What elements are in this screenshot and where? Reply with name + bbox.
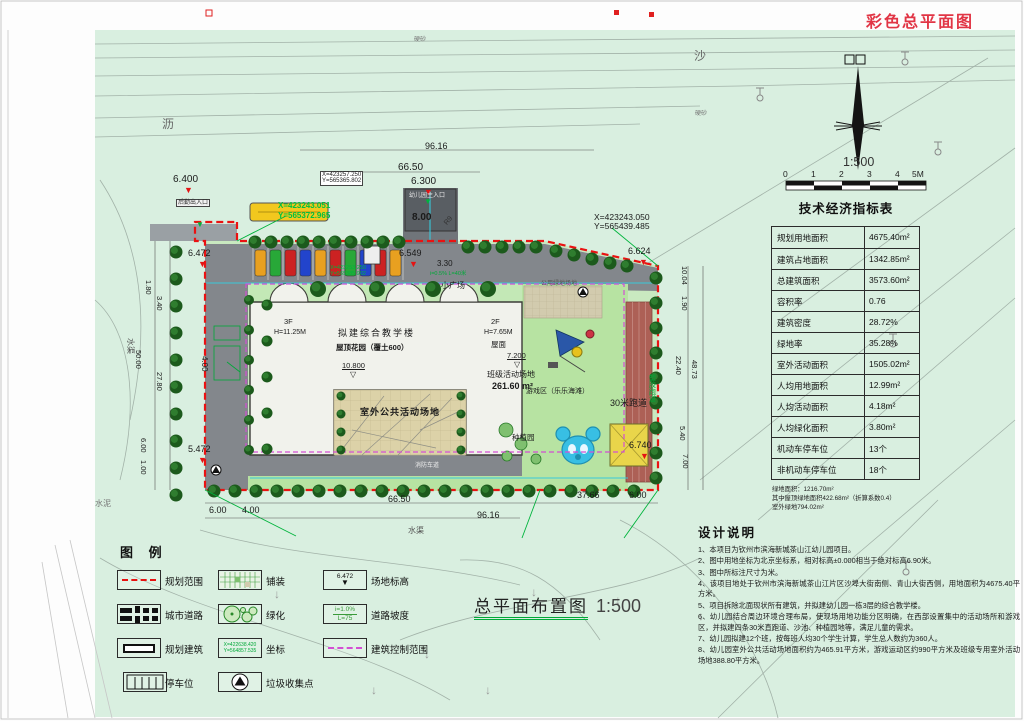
- greenery-icon: [220, 604, 260, 624]
- indicator-row: 容积率0.76: [772, 290, 919, 311]
- building-outline-icon: [123, 644, 155, 653]
- indicator-label: 人均绿化面积: [772, 417, 865, 437]
- legend-label: 铺装: [266, 574, 285, 588]
- legend-symbol-trash-point: [218, 672, 262, 692]
- indicator-row: 人均活动面积4.18m²: [772, 395, 919, 416]
- indicator-table-title: 技术经济指标表: [758, 198, 934, 217]
- legend-label: 绿化: [266, 608, 285, 622]
- design-notes-title: 设计说明: [698, 522, 1020, 541]
- slope-value: i=1.0%: [333, 606, 357, 614]
- legend-symbol-building-control: [323, 638, 367, 658]
- indicator-label: 机动车停车位: [772, 438, 865, 458]
- indicator-label: 人均活动面积: [772, 396, 865, 416]
- indicator-label: 规划用地面积: [772, 227, 865, 248]
- legend-symbol-planned-building: [117, 638, 161, 658]
- indicator-value: 4.18m²: [865, 396, 919, 416]
- indicator-row: 非机动车停车位18个: [772, 458, 919, 479]
- trash-point-legend-icon: [220, 672, 260, 692]
- design-note: 1、本项目为钦州市滨海新城茶山江幼儿园项目。: [698, 545, 1020, 555]
- red-dash-line-icon: [122, 579, 156, 581]
- drawing-title-text: 总平面布置图: [474, 597, 588, 620]
- design-note: 6、幼儿园结合周边环境合理布局，使现场用地功能分区明确，在西部设置集中的活动场所…: [698, 612, 1020, 633]
- indicator-label: 建筑占地面积: [772, 249, 865, 269]
- legend-label: 道路坡度: [371, 608, 409, 622]
- indicator-value: 3573.60m²: [865, 270, 919, 290]
- indicator-row: 建筑密度28.72%: [772, 311, 919, 332]
- indicator-row: 总建筑面积3573.60m²: [772, 269, 919, 290]
- indicator-value: 4675.40m²: [865, 227, 919, 248]
- scale-tick: 5M: [912, 169, 924, 179]
- slope-length: L=75: [338, 615, 353, 622]
- indicator-footnote: 绿地面积：1216.70m²: [772, 486, 896, 495]
- design-notes-panel: 设计说明 1、本项目为钦州市滨海新城茶山江幼儿园项目。2、图中用地坐标为北京坐标…: [698, 522, 1020, 667]
- legend-label: 建筑控制范围: [371, 642, 428, 656]
- elevation-marker-icon: 6.472 ▼: [337, 574, 353, 587]
- survey-marks: [206, 10, 654, 17]
- indicator-value: 12.99m²: [865, 375, 919, 395]
- scale-bar: [786, 181, 926, 190]
- legend-label: 城市道路: [165, 608, 203, 622]
- legend-symbol-paving: [218, 570, 262, 590]
- indicator-value: 0.76: [865, 291, 919, 311]
- indicator-value: 35.28%: [865, 333, 919, 353]
- coordinate-icon: X=422638.420 Y=564857.535: [224, 642, 257, 654]
- design-note: 4、该项目地处于钦州市滨海新城茶山江片区沙埠大街南侧、青山大街西侧，用地面积为4…: [698, 579, 1020, 600]
- indicator-value: 3.80m²: [865, 417, 919, 437]
- legend-symbol-coordinates: X=422638.420 Y=564857.535: [218, 638, 262, 658]
- scale-tick: 0: [783, 169, 788, 179]
- indicator-row: 人均绿化面积3.80m²: [772, 416, 919, 437]
- site-plan-sheet: 96.1666.506.400▼6.300▼▼8.00幼儿园主入口后勤出入口▼R…: [0, 0, 1024, 721]
- design-note: 8、幼儿园室外公共活动场地面积约为465.91平方米，游戏运动区约990平方米及…: [698, 645, 1020, 666]
- indicator-label: 绿地率: [772, 333, 865, 353]
- courtyard-plaza: [334, 390, 466, 455]
- design-note: 2、图中用地坐标为北京坐标系，相对标高±0.000相当于绝对标高6.90米。: [698, 556, 1020, 566]
- indicator-value: 28.72%: [865, 312, 919, 332]
- legend-label: 坐标: [266, 642, 285, 656]
- coord-y: Y=564857.535: [224, 648, 257, 654]
- legend-symbol-road-slope: i=1.0% L=75: [323, 604, 367, 624]
- legend-symbol-site-elevation: 6.472 ▼: [323, 570, 367, 590]
- parking-icon: [125, 673, 165, 691]
- legend-label: 规划范围: [165, 574, 203, 588]
- indicator-row: 人均用地面积12.99m²: [772, 374, 919, 395]
- legend-label: 垃圾收集点: [266, 676, 314, 690]
- page-title: 彩色总平面图: [866, 8, 974, 32]
- legend-symbol-parking: [123, 672, 167, 692]
- drawing-title: 总平面布置图1:500: [474, 592, 641, 617]
- design-note: 7、幼儿园拟建12个班，按每班人均30个学生计算，学生总人数约为360人。: [698, 634, 1020, 644]
- indicator-label: 非机动车停车位: [772, 459, 865, 479]
- indicator-row: 机动车停车位13个: [772, 437, 919, 458]
- scale-tick: 3: [867, 169, 872, 179]
- parking-row: [253, 246, 403, 280]
- indicator-label: 室外活动面积: [772, 354, 865, 374]
- indicator-row: 室外活动面积1505.02m²: [772, 353, 919, 374]
- indicator-row: 绿地率35.28%: [772, 332, 919, 353]
- sand-pit: [610, 424, 648, 466]
- legend-title: 图 例: [120, 542, 168, 561]
- design-note: 3、图中所标注尺寸为米。: [698, 568, 1020, 578]
- indicator-footnote: 其中屋顶绿地面积422.68m²（折算系数0.4）: [772, 495, 896, 504]
- legend-symbol-planning-boundary: [117, 570, 161, 590]
- indicator-label: 容积率: [772, 291, 865, 311]
- magenta-dash-line-icon: [328, 647, 362, 649]
- legend-label: 场地标高: [371, 574, 409, 588]
- indicator-value: 1342.85m²: [865, 249, 919, 269]
- legend-symbol-city-road: [117, 604, 161, 624]
- indicator-table: 规划用地面积4675.40m²建筑占地面积1342.85m²总建筑面积3573.…: [771, 226, 920, 480]
- road-slope-icon: i=1.0% L=75: [333, 606, 357, 622]
- indicator-footnotes: 绿地面积：1216.70m²其中屋顶绿地面积422.68m²（折算系数0.4）室…: [772, 486, 896, 512]
- indicator-footnote: 室外绿地794.02m²: [772, 504, 896, 513]
- indicator-label: 建筑密度: [772, 312, 865, 332]
- drawing-title-scale: 1:500: [596, 596, 641, 616]
- indicator-value: 1505.02m²: [865, 354, 919, 374]
- indicator-row: 建筑占地面积1342.85m²: [772, 248, 919, 269]
- scale-tick: 1: [811, 169, 816, 179]
- indicator-label: 总建筑面积: [772, 270, 865, 290]
- scale-tick: 4: [895, 169, 900, 179]
- legend-label: 规划建筑: [165, 642, 203, 656]
- design-note: 5、项目拆除北面现状所有建筑，并拟建幼儿园一栋3层的综合教学楼。: [698, 601, 1020, 611]
- paving-icon: [220, 572, 260, 588]
- city-road-icon: [119, 605, 159, 623]
- indicator-value: 13个: [865, 438, 919, 458]
- paved-strip: [524, 286, 602, 318]
- indicator-row: 规划用地面积4675.40m²: [772, 227, 919, 248]
- scale-tick: 2: [839, 169, 844, 179]
- scale-label: 1:500: [843, 155, 874, 169]
- indicator-table-panel: 技术经济指标表 规划用地面积4675.40m²建筑占地面积1342.85m²总建…: [758, 198, 934, 480]
- indicator-label: 人均用地面积: [772, 375, 865, 395]
- legend-symbol-greenery: [218, 604, 262, 624]
- legend-label: 停车位: [165, 676, 194, 690]
- indicator-value: 18个: [865, 459, 919, 479]
